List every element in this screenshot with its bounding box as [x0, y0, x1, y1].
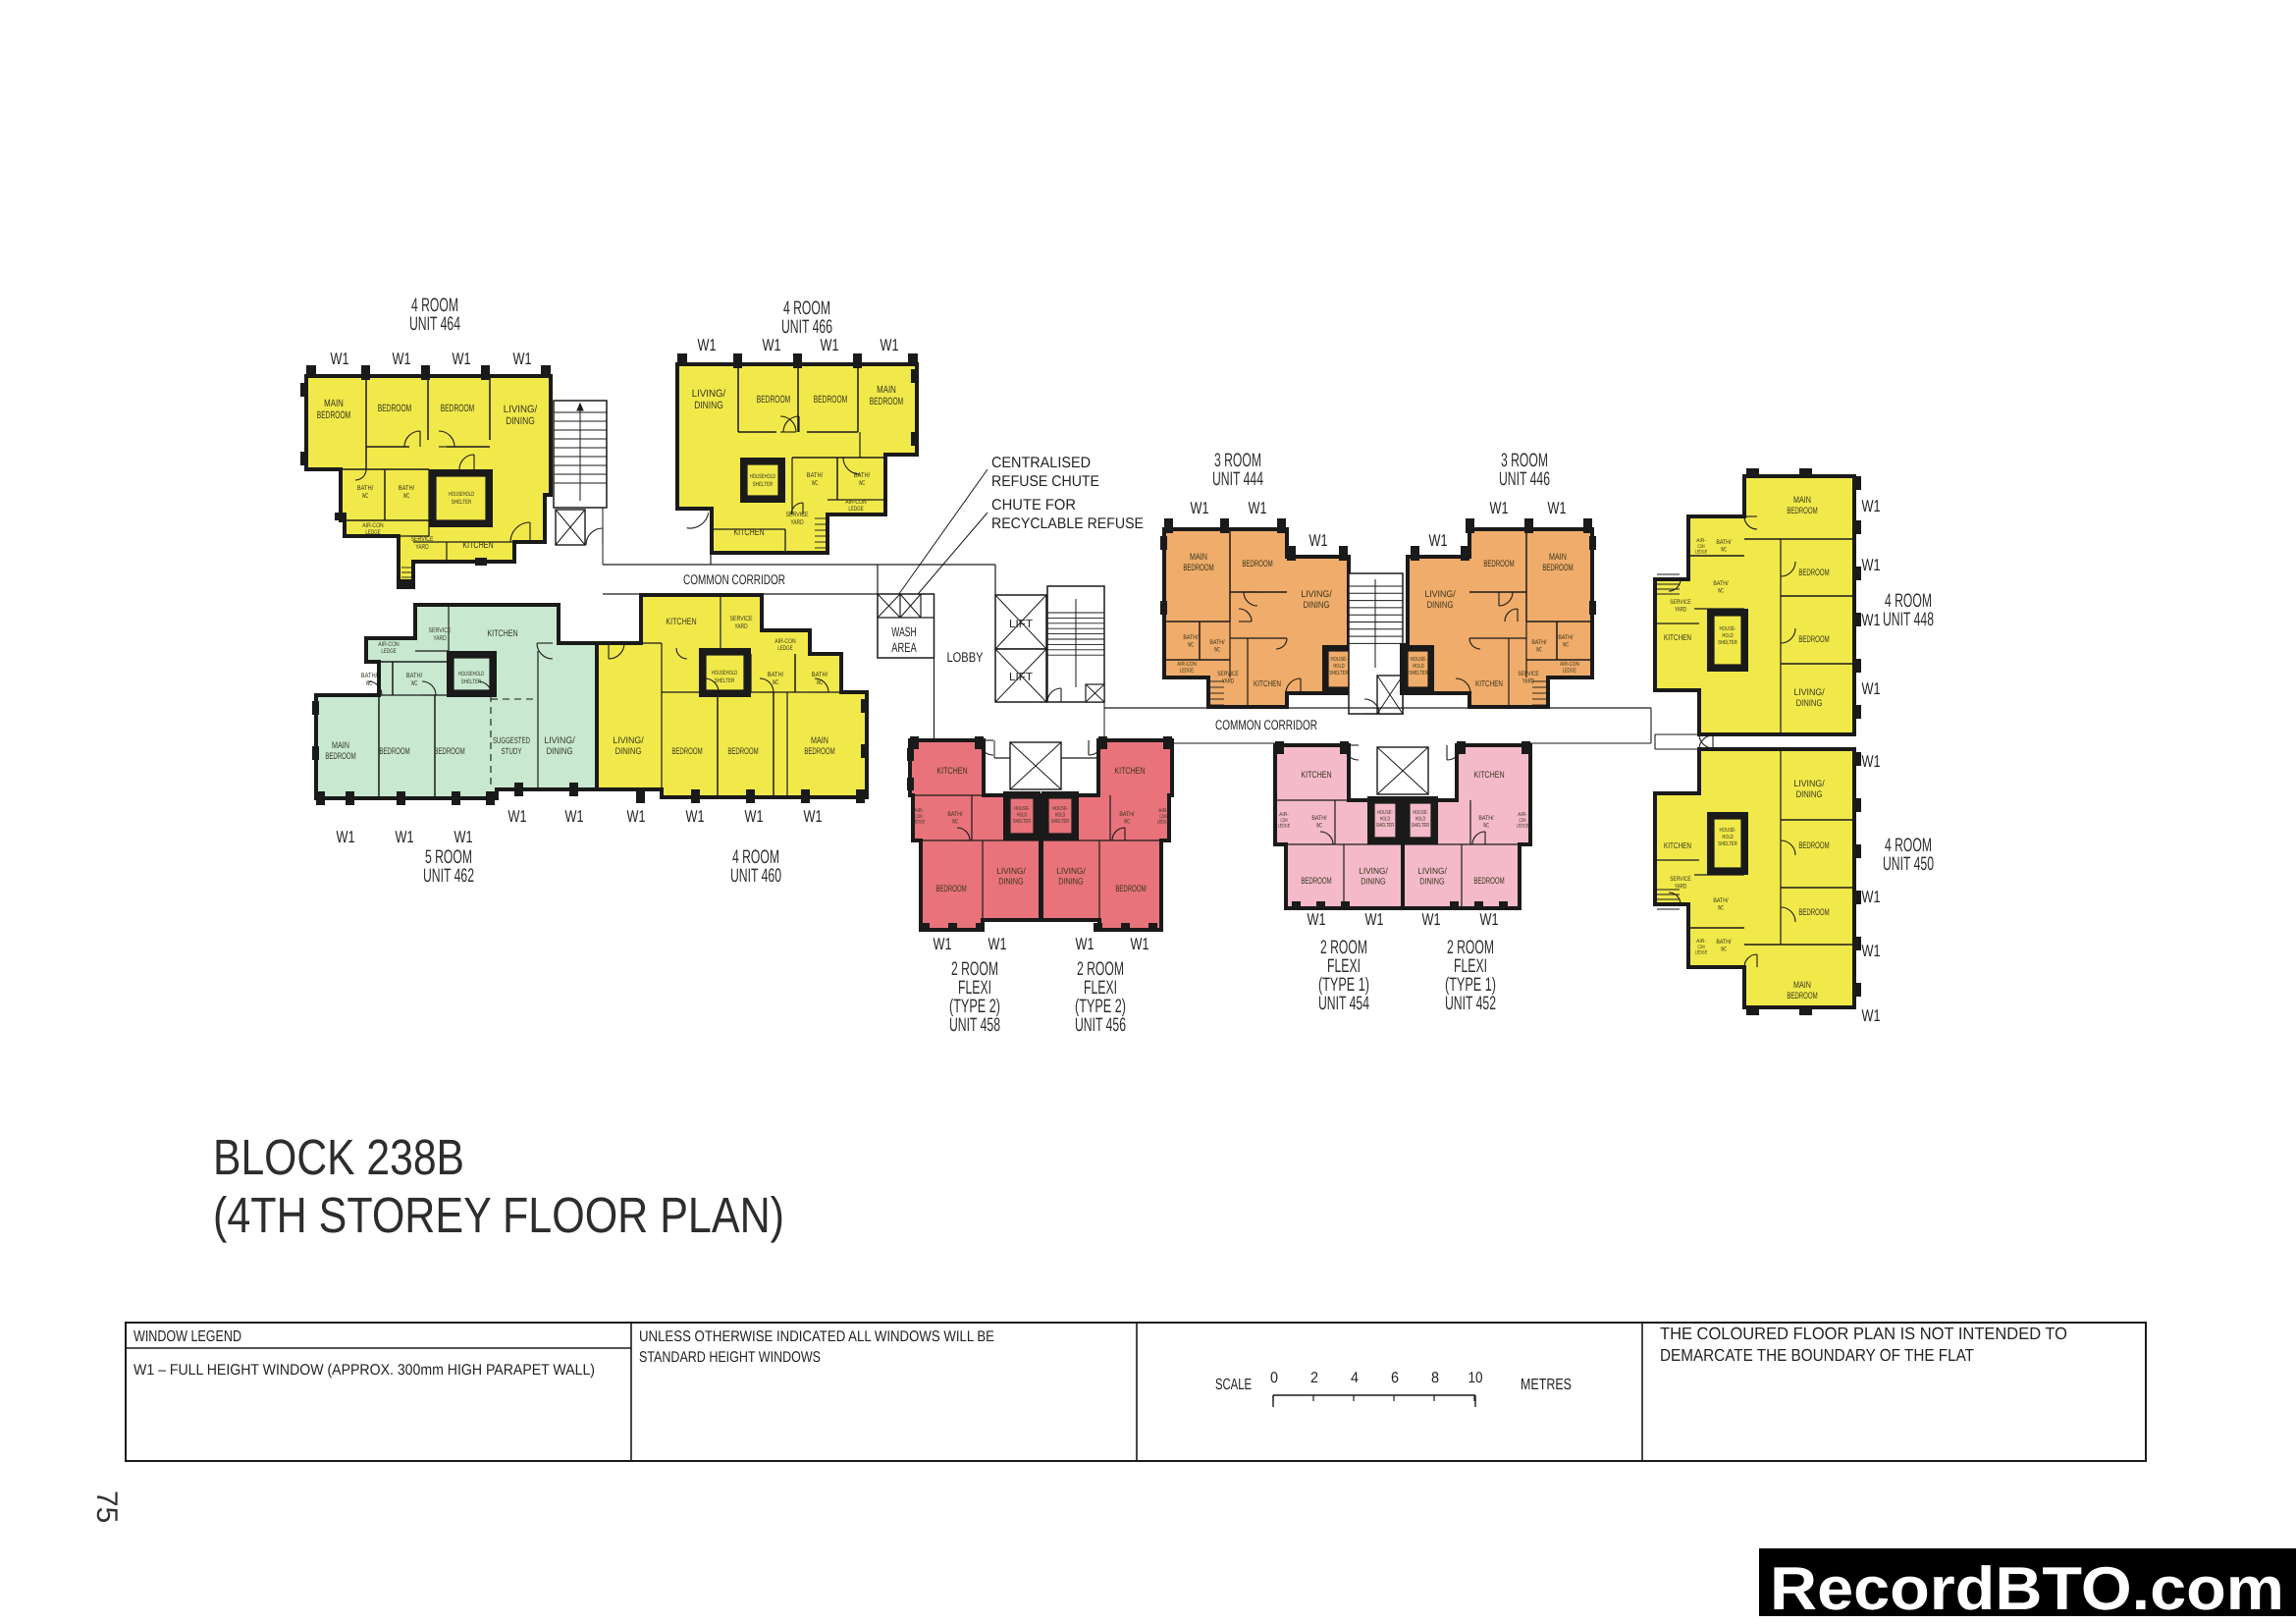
svg-text:MAIN: MAIN: [324, 398, 344, 409]
svg-text:HOUSE-: HOUSE-: [1720, 827, 1736, 834]
svg-text:W1: W1: [1131, 935, 1149, 953]
svg-text:MAIN: MAIN: [1793, 495, 1811, 506]
svg-text:BEDROOM: BEDROOM: [379, 746, 409, 757]
svg-text:AIR-CON: AIR-CON: [1560, 661, 1579, 668]
svg-text:HOLD: HOLD: [1413, 663, 1424, 670]
svg-text:DINING: DINING: [1419, 877, 1444, 887]
svg-text:LIVING/: LIVING/: [613, 735, 644, 746]
svg-text:KITCHEN: KITCHEN: [1473, 770, 1504, 781]
svg-text:BEDROOM: BEDROOM: [757, 394, 791, 406]
svg-text:WC: WC: [859, 480, 866, 487]
svg-text:UNIT 462: UNIT 462: [423, 865, 474, 887]
svg-text:LIVING/: LIVING/: [692, 388, 726, 400]
svg-text:STANDARD HEIGHT WINDOWS: STANDARD HEIGHT WINDOWS: [639, 1349, 821, 1366]
svg-text:KITCHEN: KITCHEN: [1114, 766, 1145, 777]
svg-text:WC: WC: [1188, 642, 1194, 649]
svg-text:MAIN: MAIN: [877, 384, 896, 396]
svg-text:YARD: YARD: [1522, 678, 1534, 685]
svg-text:THE COLOURED FLOOR PLAN IS NOT: THE COLOURED FLOOR PLAN IS NOT INTENDED …: [1660, 1324, 2067, 1343]
svg-text:RecordBTO.com: RecordBTO.com: [1770, 1555, 2284, 1623]
svg-text:BEDROOM: BEDROOM: [1542, 563, 1573, 573]
svg-text:MAIN: MAIN: [1549, 552, 1567, 563]
svg-text:YARD: YARD: [734, 623, 747, 630]
svg-text:SHELTER: SHELTER: [1718, 639, 1737, 646]
svg-text:SHELTER: SHELTER: [1376, 823, 1394, 829]
svg-text:W1: W1: [881, 336, 899, 354]
svg-text:SERVICE: SERVICE: [1518, 671, 1539, 677]
svg-text:W1: W1: [337, 828, 355, 846]
svg-text:LIVING/: LIVING/: [504, 404, 538, 415]
svg-text:SCALE: SCALE: [1215, 1377, 1252, 1393]
svg-text:BEDROOM: BEDROOM: [325, 751, 355, 762]
svg-text:W1: W1: [1862, 888, 1881, 906]
svg-text:BEDROOM: BEDROOM: [1798, 907, 1829, 918]
svg-text:8: 8: [1431, 1370, 1439, 1386]
svg-text:WC: WC: [362, 493, 369, 500]
svg-text:UNIT 454: UNIT 454: [1318, 993, 1369, 1014]
svg-text:KITCHEN: KITCHEN: [487, 628, 517, 639]
svg-text:UNIT 452: UNIT 452: [1445, 993, 1496, 1014]
svg-text:W1: W1: [804, 807, 823, 826]
svg-text:DINING: DINING: [615, 746, 642, 757]
svg-text:WASH: WASH: [891, 624, 916, 639]
svg-text:UNIT 460: UNIT 460: [730, 865, 781, 887]
svg-text:BEDROOM: BEDROOM: [870, 396, 904, 407]
svg-text:BEDROOM: BEDROOM: [1115, 884, 1146, 894]
svg-text:BATH/: BATH/: [812, 671, 828, 678]
svg-text:WC: WC: [1718, 588, 1724, 595]
svg-text:W1: W1: [1862, 497, 1881, 515]
svg-text:UNIT 448: UNIT 448: [1883, 609, 1934, 630]
svg-text:COMMON CORRIDOR: COMMON CORRIDOR: [683, 571, 785, 587]
svg-text:W1: W1: [934, 935, 952, 953]
svg-text:BATH/: BATH/: [947, 811, 962, 818]
svg-text:LEDGE: LEDGE: [381, 648, 397, 655]
svg-text:6: 6: [1391, 1370, 1399, 1386]
svg-text:BATH/: BATH/: [406, 672, 422, 679]
svg-text:BATH/: BATH/: [357, 484, 373, 492]
svg-text:KITCHEN: KITCHEN: [936, 766, 967, 777]
svg-text:AIR-CON: AIR-CON: [845, 499, 867, 506]
svg-text:DINING: DINING: [1361, 877, 1385, 887]
svg-text:BEDROOM: BEDROOM: [804, 746, 834, 757]
svg-text:LEDGE: LEDGE: [848, 506, 864, 513]
svg-text:SHELTER: SHELTER: [1718, 840, 1737, 847]
svg-text:COMMON CORRIDOR: COMMON CORRIDOR: [1215, 717, 1317, 732]
svg-text:W1: W1: [1249, 499, 1267, 517]
svg-text:LEDGE: LEDGE: [777, 645, 793, 652]
svg-text:LEDGE: LEDGE: [1563, 668, 1576, 675]
svg-text:CHUTE FOR: CHUTE FOR: [991, 497, 1076, 514]
svg-text:LEDGE: LEDGE: [1180, 668, 1194, 675]
svg-text:W1: W1: [698, 336, 717, 354]
svg-text:BEDROOM: BEDROOM: [1787, 991, 1817, 1001]
svg-text:LEDGE: LEDGE: [1517, 824, 1529, 830]
svg-text:SERVICE: SERVICE: [786, 512, 809, 518]
svg-text:BATH/: BATH/: [361, 672, 377, 679]
svg-text:LIVING/: LIVING/: [1301, 589, 1332, 600]
svg-text:75: 75: [90, 1490, 123, 1523]
svg-text:W1: W1: [453, 350, 471, 368]
svg-text:W1: W1: [454, 828, 473, 846]
svg-text:SHELTER: SHELTER: [753, 481, 774, 488]
svg-text:HOUSE-: HOUSE-: [1052, 806, 1068, 812]
svg-text:SERVICE: SERVICE: [730, 616, 753, 623]
svg-text:BEDROOM: BEDROOM: [317, 409, 351, 421]
svg-text:LEDGE: LEDGE: [913, 820, 926, 826]
svg-text:UNLESS OTHERWISE INDICATED ALL: UNLESS OTHERWISE INDICATED ALL WINDOWS W…: [639, 1328, 994, 1345]
svg-text:AIR-CON: AIR-CON: [362, 522, 384, 529]
svg-text:DINING: DINING: [1796, 789, 1823, 800]
svg-text:W1: W1: [1490, 499, 1509, 517]
svg-text:KITCHEN: KITCHEN: [1664, 632, 1691, 642]
svg-text:W1: W1: [686, 807, 705, 826]
svg-text:BATH/: BATH/: [399, 484, 414, 492]
svg-text:W1: W1: [1308, 910, 1326, 929]
svg-text:W1: W1: [821, 336, 839, 354]
svg-text:KITCHEN: KITCHEN: [462, 540, 493, 551]
svg-text:UNIT 446: UNIT 446: [1499, 468, 1550, 490]
svg-text:WC: WC: [411, 680, 418, 687]
svg-text:BATH/: BATH/: [1558, 634, 1573, 641]
svg-text:BLOCK 238B: BLOCK 238B: [213, 1129, 464, 1185]
svg-text:WC: WC: [366, 680, 373, 687]
svg-text:BATH/: BATH/: [1531, 639, 1546, 646]
svg-text:W1: W1: [1862, 1006, 1881, 1025]
svg-text:LIVING/: LIVING/: [1424, 589, 1456, 600]
svg-text:HOUSE-: HOUSE-: [1377, 810, 1393, 816]
svg-text:W1: W1: [565, 807, 584, 826]
svg-text:BEDROOM: BEDROOM: [1787, 506, 1817, 516]
svg-text:W1: W1: [1862, 611, 1881, 629]
svg-text:BATH/: BATH/: [1716, 939, 1731, 946]
svg-text:LEDGE: LEDGE: [1695, 550, 1708, 556]
svg-text:AIR-CON: AIR-CON: [774, 638, 796, 645]
svg-text:YARD: YARD: [1675, 607, 1686, 614]
svg-text:HOLD: HOLD: [1722, 834, 1734, 840]
svg-text:LIVING/: LIVING/: [544, 735, 575, 746]
svg-text:BEDROOM: BEDROOM: [1798, 634, 1829, 645]
svg-text:HOLD: HOLD: [1415, 817, 1426, 823]
svg-text:SUGGESTED: SUGGESTED: [493, 735, 530, 745]
svg-text:DINING: DINING: [506, 415, 535, 427]
svg-text:METRES: METRES: [1521, 1377, 1572, 1393]
svg-text:HOUSE-: HOUSE-: [1411, 656, 1427, 663]
svg-text:W1 – FULL HEIGHT WINDOW (APPRO: W1 – FULL HEIGHT WINDOW (APPROX. 300mm H…: [133, 1362, 595, 1379]
svg-text:BEDROOM: BEDROOM: [378, 403, 412, 414]
svg-text:BATH/: BATH/: [1119, 811, 1134, 818]
svg-text:LEDGE: LEDGE: [1695, 950, 1708, 956]
svg-text:HOLD: HOLD: [1380, 817, 1391, 823]
svg-text:4: 4: [1351, 1370, 1359, 1386]
svg-text:KITCHEN: KITCHEN: [1475, 678, 1503, 688]
svg-text:WC: WC: [1483, 823, 1489, 830]
svg-text:BEDROOM: BEDROOM: [1242, 559, 1272, 569]
svg-text:BEDROOM: BEDROOM: [1183, 563, 1213, 573]
svg-text:BATH/: BATH/: [854, 471, 870, 479]
svg-text:BEDROOM: BEDROOM: [1301, 876, 1331, 887]
svg-text:REFUSE CHUTE: REFUSE CHUTE: [991, 473, 1099, 490]
svg-text:BEDROOM: BEDROOM: [434, 746, 464, 757]
svg-text:SERVICE: SERVICE: [411, 536, 434, 543]
svg-text:BEDROOM: BEDROOM: [727, 746, 758, 757]
svg-text:SHELTER: SHELTER: [1329, 670, 1349, 677]
svg-text:BEDROOM: BEDROOM: [1798, 568, 1829, 578]
svg-text:UNIT 466: UNIT 466: [781, 316, 832, 338]
svg-text:W1: W1: [1365, 910, 1384, 929]
svg-text:BEDROOM: BEDROOM: [1798, 840, 1829, 851]
svg-text:AIR-CON: AIR-CON: [1177, 661, 1197, 668]
svg-text:HOUSEHOLD: HOUSEHOLD: [750, 473, 776, 480]
svg-text:LIVING/: LIVING/: [1417, 866, 1447, 876]
svg-text:W1: W1: [513, 350, 532, 368]
svg-text:BATH/: BATH/: [1311, 815, 1326, 822]
svg-text:YARD: YARD: [790, 519, 803, 526]
svg-text:BEDROOM: BEDROOM: [1473, 876, 1504, 887]
svg-text:W1: W1: [1422, 910, 1441, 929]
svg-text:BEDROOM: BEDROOM: [671, 746, 702, 757]
svg-text:YARD: YARD: [1222, 678, 1234, 685]
svg-text:W1: W1: [1480, 910, 1499, 929]
svg-text:W1: W1: [988, 935, 1007, 953]
svg-text:HOUSEHOLD: HOUSEHOLD: [458, 671, 485, 677]
svg-text:10: 10: [1468, 1370, 1483, 1386]
svg-text:W1: W1: [1309, 531, 1328, 550]
svg-text:UNIT 444: UNIT 444: [1212, 468, 1263, 490]
svg-text:W1: W1: [1862, 752, 1881, 771]
svg-text:BATH/: BATH/: [1209, 639, 1224, 646]
svg-text:LIFT: LIFT: [1009, 672, 1033, 683]
svg-text:CENTRALISED: CENTRALISED: [991, 455, 1091, 471]
svg-text:WC: WC: [403, 493, 410, 500]
svg-text:WC: WC: [1124, 819, 1130, 826]
svg-text:KITCHEN: KITCHEN: [1254, 678, 1281, 688]
svg-text:DINING: DINING: [998, 877, 1023, 887]
svg-text:WC: WC: [1316, 823, 1322, 830]
svg-text:W1: W1: [1076, 935, 1095, 953]
svg-text:HOLD: HOLD: [1722, 632, 1734, 639]
svg-text:HOUSEHOLD: HOUSEHOLD: [449, 491, 475, 498]
svg-text:HOUSEHOLD: HOUSEHOLD: [712, 670, 738, 677]
svg-text:WC: WC: [1563, 642, 1569, 649]
svg-text:HOUSE-: HOUSE-: [1720, 625, 1736, 632]
svg-text:W1: W1: [1191, 499, 1209, 517]
svg-text:LEDGE: LEDGE: [1157, 820, 1170, 826]
svg-text:UNIT 456: UNIT 456: [1075, 1014, 1126, 1036]
svg-text:BEDROOM: BEDROOM: [814, 394, 848, 406]
svg-text:BATH/: BATH/: [807, 471, 823, 479]
svg-text:UNIT 450: UNIT 450: [1883, 853, 1934, 875]
svg-text:HOUSE-: HOUSE-: [1331, 656, 1348, 663]
svg-text:YARD: YARD: [1675, 884, 1686, 891]
svg-text:W1: W1: [1548, 499, 1567, 517]
svg-text:W1: W1: [508, 807, 527, 826]
svg-text:MAIN: MAIN: [1190, 552, 1207, 563]
svg-text:SERVICE: SERVICE: [1670, 876, 1691, 883]
svg-text:DINING: DINING: [1427, 600, 1454, 611]
svg-text:WC: WC: [952, 819, 958, 826]
svg-text:0: 0: [1270, 1370, 1278, 1386]
svg-text:W1: W1: [763, 336, 781, 354]
svg-text:W1: W1: [1862, 679, 1881, 698]
svg-text:SHELTER: SHELTER: [452, 499, 472, 506]
svg-text:(4TH STOREY FLOOR PLAN): (4TH STOREY FLOOR PLAN): [213, 1187, 784, 1243]
svg-text:BEDROOM: BEDROOM: [441, 403, 475, 414]
svg-text:SHELTER: SHELTER: [461, 678, 482, 685]
svg-text:DEMARCATE THE BOUNDARY OF THE: DEMARCATE THE BOUNDARY OF THE FLAT: [1660, 1345, 1974, 1365]
svg-text:HOLD: HOLD: [1333, 663, 1345, 670]
svg-text:SHELTER: SHELTER: [1013, 819, 1031, 825]
svg-text:UNIT 458: UNIT 458: [949, 1014, 1000, 1036]
svg-text:BATH/: BATH/: [1713, 580, 1728, 587]
svg-text:2: 2: [1310, 1370, 1318, 1386]
svg-text:LIVING/: LIVING/: [1359, 866, 1388, 876]
svg-text:W1: W1: [1862, 556, 1881, 574]
svg-text:KITCHEN: KITCHEN: [1301, 770, 1331, 781]
svg-text:AREA: AREA: [891, 640, 916, 655]
svg-text:LIVING/: LIVING/: [1056, 866, 1086, 876]
svg-text:WC: WC: [812, 480, 819, 487]
svg-text:KITCHEN: KITCHEN: [666, 617, 696, 627]
svg-text:W1: W1: [627, 807, 646, 826]
svg-text:WC: WC: [1214, 647, 1220, 654]
svg-text:LIFT: LIFT: [1009, 619, 1033, 630]
svg-text:W1: W1: [393, 350, 411, 368]
svg-text:MAIN: MAIN: [1793, 980, 1811, 991]
svg-text:BATH/: BATH/: [768, 671, 783, 678]
svg-text:BATH/: BATH/: [1478, 815, 1493, 822]
svg-text:UNIT 464: UNIT 464: [409, 313, 460, 335]
svg-text:BEDROOM: BEDROOM: [1483, 559, 1514, 569]
svg-text:MAIN: MAIN: [332, 740, 349, 751]
svg-text:KITCHEN: KITCHEN: [733, 527, 764, 538]
svg-text:HOLD: HOLD: [1055, 813, 1066, 819]
svg-text:W1: W1: [1862, 942, 1881, 960]
svg-text:LOBBY: LOBBY: [947, 649, 985, 665]
svg-text:WC: WC: [773, 679, 779, 686]
svg-text:DINING: DINING: [1058, 877, 1083, 887]
svg-text:HOUSE-: HOUSE-: [1014, 806, 1030, 812]
svg-text:BATH/: BATH/: [1183, 634, 1198, 641]
svg-text:SERVICE: SERVICE: [1217, 671, 1239, 677]
svg-text:KITCHEN: KITCHEN: [1664, 840, 1691, 850]
svg-text:LIVING/: LIVING/: [1793, 779, 1825, 789]
svg-text:W1: W1: [745, 807, 764, 826]
svg-text:BATH/: BATH/: [1716, 539, 1731, 546]
svg-text:WC: WC: [1721, 547, 1727, 554]
svg-text:WINDOW LEGEND: WINDOW LEGEND: [133, 1328, 241, 1345]
svg-text:LEDGE: LEDGE: [365, 529, 381, 536]
svg-text:LIVING/: LIVING/: [1793, 687, 1825, 698]
svg-text:LIVING/: LIVING/: [996, 866, 1026, 876]
svg-text:SHELTER: SHELTER: [1412, 823, 1429, 829]
svg-text:RECYCLABLE REFUSE: RECYCLABLE REFUSE: [991, 515, 1144, 532]
svg-text:SHELTER: SHELTER: [1409, 670, 1428, 677]
svg-text:YARD: YARD: [433, 635, 446, 642]
svg-text:LEDGE: LEDGE: [1278, 824, 1291, 830]
svg-text:BATH/: BATH/: [1713, 897, 1728, 904]
svg-text:WC: WC: [1718, 905, 1724, 912]
svg-text:STUDY: STUDY: [501, 746, 521, 756]
svg-text:BEDROOM: BEDROOM: [935, 884, 966, 894]
svg-text:WC: WC: [1721, 947, 1727, 953]
svg-text:W1: W1: [331, 350, 349, 368]
svg-text:W1: W1: [396, 828, 414, 846]
svg-text:DINING: DINING: [1796, 698, 1823, 709]
svg-text:YARD: YARD: [415, 544, 428, 551]
svg-text:DINING: DINING: [1304, 600, 1330, 611]
svg-text:SERVICE: SERVICE: [429, 627, 452, 634]
svg-text:HOUSE-: HOUSE-: [1413, 810, 1428, 816]
svg-text:MAIN: MAIN: [811, 735, 828, 746]
svg-text:WC: WC: [1536, 647, 1542, 654]
svg-text:SERVICE: SERVICE: [1670, 599, 1691, 606]
svg-text:HOLD: HOLD: [1017, 813, 1028, 819]
svg-text:SHELTER: SHELTER: [715, 677, 735, 684]
svg-text:AIR-CON: AIR-CON: [378, 641, 400, 648]
svg-text:DINING: DINING: [547, 746, 573, 757]
svg-text:W1: W1: [1429, 531, 1448, 550]
svg-text:DINING: DINING: [694, 400, 723, 411]
svg-text:SHELTER: SHELTER: [1051, 819, 1069, 825]
svg-text:WC: WC: [817, 679, 824, 686]
